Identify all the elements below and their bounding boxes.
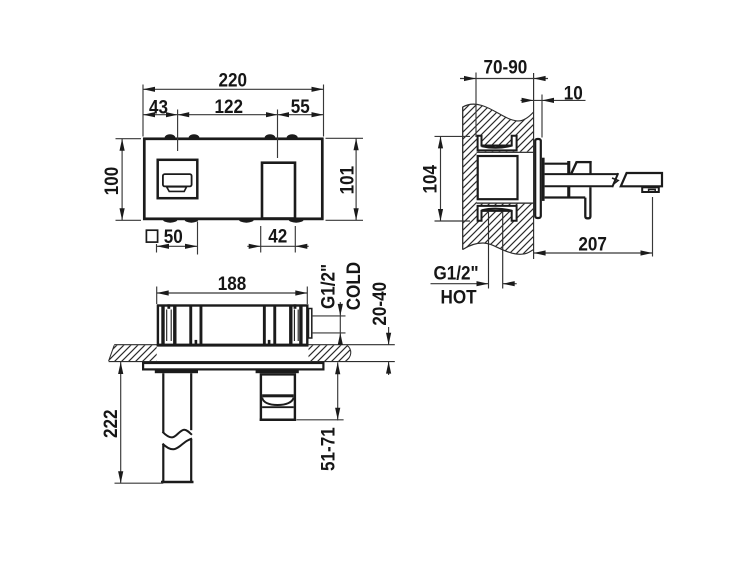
svg-text:101: 101 bbox=[337, 166, 358, 195]
svg-text:42: 42 bbox=[268, 226, 287, 247]
svg-text:G1/2": G1/2" bbox=[317, 264, 338, 309]
svg-text:70-90: 70-90 bbox=[484, 57, 528, 78]
svg-text:COLD: COLD bbox=[343, 262, 364, 310]
svg-text:20-40: 20-40 bbox=[369, 282, 390, 326]
svg-text:207: 207 bbox=[578, 234, 607, 255]
svg-text:188: 188 bbox=[218, 273, 247, 294]
svg-text:G1/2": G1/2" bbox=[434, 263, 479, 284]
svg-text:51-71: 51-71 bbox=[318, 427, 339, 471]
svg-text:122: 122 bbox=[215, 96, 244, 117]
svg-text:100: 100 bbox=[101, 167, 122, 196]
svg-text:222: 222 bbox=[100, 409, 121, 438]
svg-text:104: 104 bbox=[420, 165, 441, 194]
svg-text:220: 220 bbox=[218, 69, 247, 90]
svg-text:10: 10 bbox=[564, 83, 583, 104]
svg-text:43: 43 bbox=[149, 96, 168, 117]
svg-text:50: 50 bbox=[164, 226, 183, 247]
svg-text:HOT: HOT bbox=[441, 287, 477, 308]
svg-text:55: 55 bbox=[291, 96, 310, 117]
